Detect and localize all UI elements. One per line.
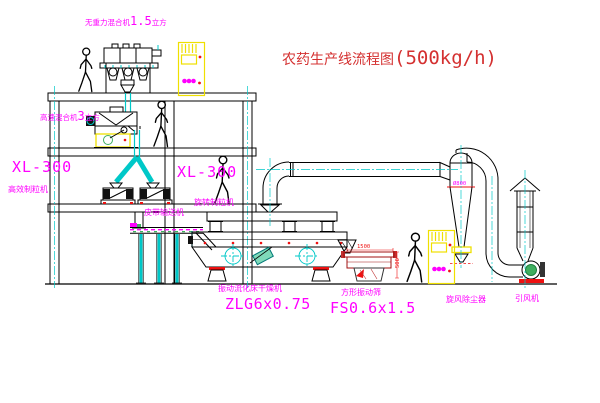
fluid-bed-dryer — [188, 212, 356, 281]
control-cabinet-lower — [429, 231, 455, 284]
person-roof — [79, 48, 92, 92]
process-flow-diagram: 1500 500 Ø800 农药生产线流程图(500kg/h) 无重力混合机1.… — [0, 0, 600, 403]
label-granulator-left-name: 高效制粒机 — [8, 186, 48, 194]
label-dryer: 振动流化床干燥机 — [218, 285, 282, 293]
induced-draft-fan — [519, 261, 545, 283]
control-cabinet-upper — [179, 43, 205, 96]
label-screen: 方形振动筛 — [341, 289, 381, 297]
title-text: 农药生产线流程图 — [282, 52, 394, 68]
mixer-feed-pipe — [126, 93, 131, 112]
label-granulator-left-model: XL-300 — [12, 160, 72, 175]
gravity-mixer — [100, 44, 161, 93]
label-granulator-right-name: 旋转制粒机 — [194, 199, 234, 207]
cyclone-diameter-dim: Ø800 — [453, 180, 466, 187]
label-high-speed-mixer: 高速混合机3立方 — [40, 110, 100, 122]
label-fan: 引风机 — [515, 295, 539, 303]
granulator-right — [138, 183, 172, 204]
label-belt-conveyor: 皮带输送机 — [144, 209, 184, 217]
diagram-title: 农药生产线流程图(500kg/h) — [282, 49, 497, 68]
label-dryer-model: ZLG6x0.75 — [225, 297, 311, 312]
label-granulator-right-model: XL-300 — [177, 165, 237, 180]
label-gravity-mixer: 无重力混合机1.5立方 — [85, 15, 167, 27]
label-screen-model: FS0.6x1.5 — [330, 301, 416, 316]
person-ground — [407, 233, 422, 282]
title-capacity: (500kg/h) — [394, 47, 497, 69]
granulator-left — [101, 183, 135, 204]
screen-length-dim: 1500 — [357, 244, 370, 250]
screen-height-dim: 500 — [395, 258, 401, 268]
label-cyclone: 旋风除尘器 — [446, 296, 486, 304]
